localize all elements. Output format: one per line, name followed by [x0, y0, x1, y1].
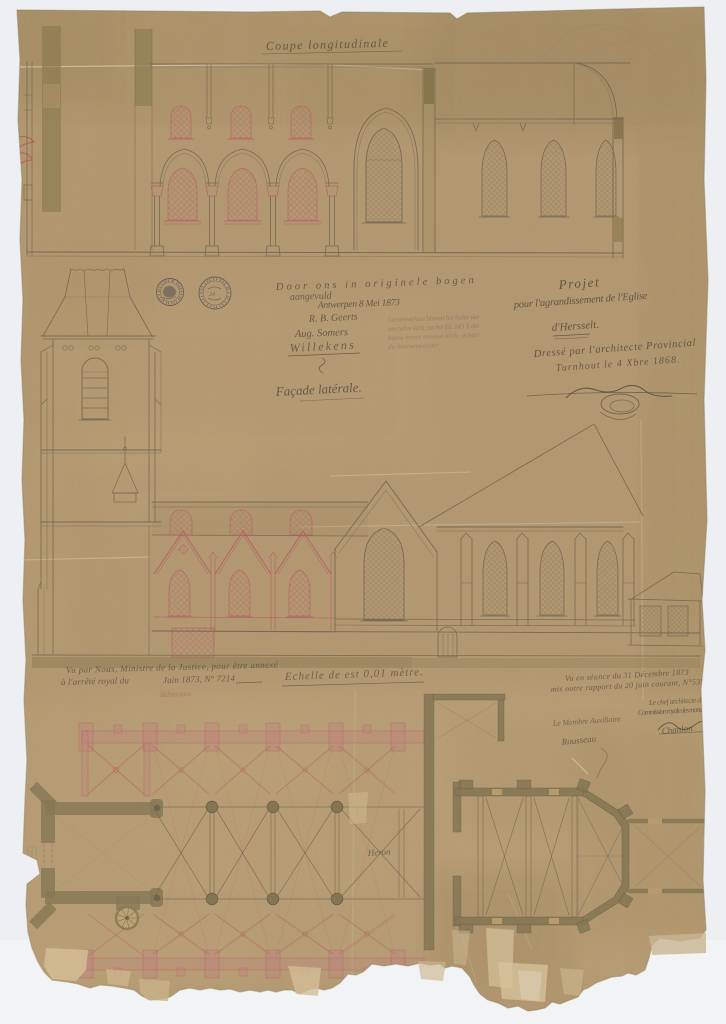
svg-text:24: 24 — [209, 291, 215, 298]
svg-text:Heron: Heron — [366, 846, 391, 858]
svg-text:Bilsecoux: Bilsecoux — [160, 689, 192, 699]
svg-text:Juin 1873, N° 7214: Juin 1873, N° 7214 — [163, 673, 236, 685]
svg-text:à l'arrêté royal du: à l'arrêté royal du — [61, 675, 130, 687]
